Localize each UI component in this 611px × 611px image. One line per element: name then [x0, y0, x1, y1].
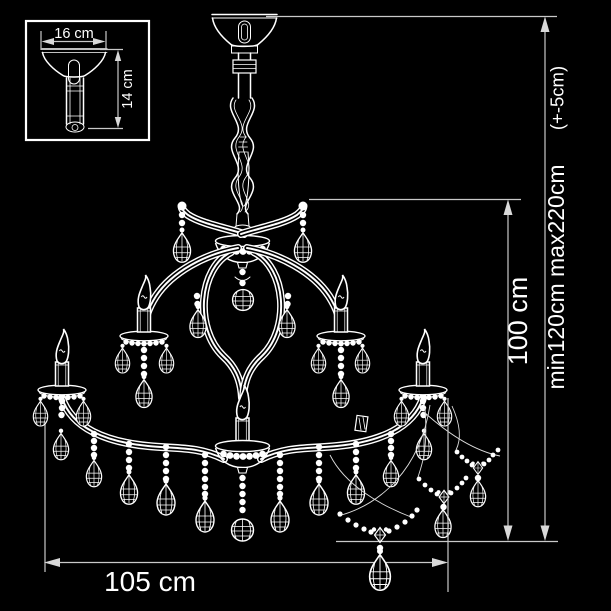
arrowhead-up — [504, 200, 513, 216]
crystal-pendant — [370, 548, 391, 590]
inset-width-label: 16 cm — [54, 26, 94, 42]
diagram-canvas: 100 cm min120cm max220cm (+-5cm) 105 cm — [0, 0, 611, 611]
candle-mid-right — [335, 275, 348, 332]
arrowhead-left — [44, 558, 60, 567]
crystal-pendant — [470, 476, 485, 507]
arrowhead-down — [504, 526, 513, 542]
arrowhead-up — [541, 17, 550, 33]
bead-swag — [417, 476, 469, 538]
suspension-rod — [233, 53, 256, 98]
inset-height-label: 14 cm — [120, 69, 136, 109]
bead-swag — [455, 448, 501, 507]
tolerance-label: (+-5cm) — [547, 66, 568, 130]
center-ball-crystal — [232, 519, 254, 541]
candle-outer-right — [417, 329, 430, 386]
candle-mid-left — [138, 275, 151, 332]
body-height-label: 100 cm — [503, 277, 533, 366]
bead-swag — [337, 507, 419, 590]
upper-ball-crystal — [233, 290, 254, 311]
mid-arm-left — [115, 248, 238, 408]
lower-bowl — [216, 441, 270, 542]
crystal-pendant — [435, 505, 451, 538]
arrowhead-right — [432, 558, 448, 567]
lower-arm-left — [33, 380, 224, 532]
ceiling-canopy — [212, 15, 277, 54]
candle-outer-left — [56, 329, 69, 386]
glass-column — [230, 98, 254, 237]
suspension-height-label: min120cm max220cm — [543, 165, 569, 390]
mid-arm-right — [247, 248, 370, 408]
arrowhead-down — [541, 526, 550, 542]
overall-width-label: 105 cm — [104, 566, 196, 597]
chandelier-technical-drawing: 100 cm min120cm max220cm (+-5cm) 105 cm — [0, 0, 611, 611]
inset-detail-box: 16 cm 14 cm — [26, 21, 149, 140]
bead-string — [239, 475, 245, 513]
connector-box — [355, 415, 368, 431]
